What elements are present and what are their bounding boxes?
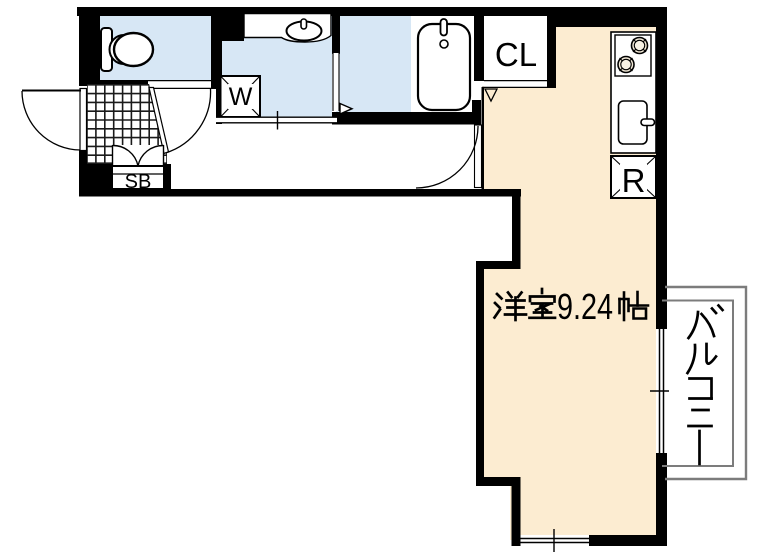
svg-text:CL: CL bbox=[495, 36, 537, 73]
svg-text:R: R bbox=[622, 162, 646, 199]
svg-text:SB: SB bbox=[125, 171, 152, 193]
svg-text:W: W bbox=[229, 83, 253, 111]
svg-text:9.24: 9.24 bbox=[557, 286, 613, 327]
